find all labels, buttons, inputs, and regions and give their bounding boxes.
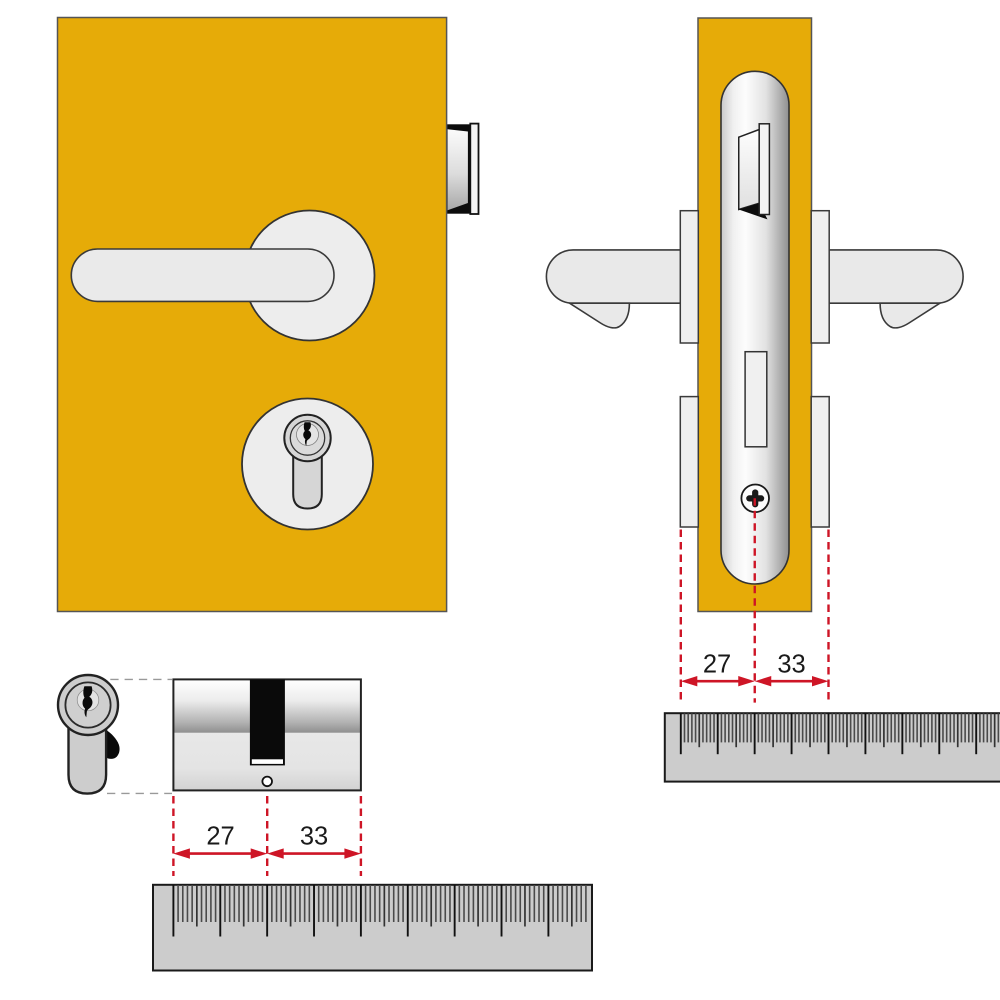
svg-text:33: 33 [300, 823, 328, 851]
svg-text:33: 33 [777, 651, 805, 679]
svg-text:27: 27 [206, 823, 234, 851]
svg-text:27: 27 [703, 651, 731, 679]
